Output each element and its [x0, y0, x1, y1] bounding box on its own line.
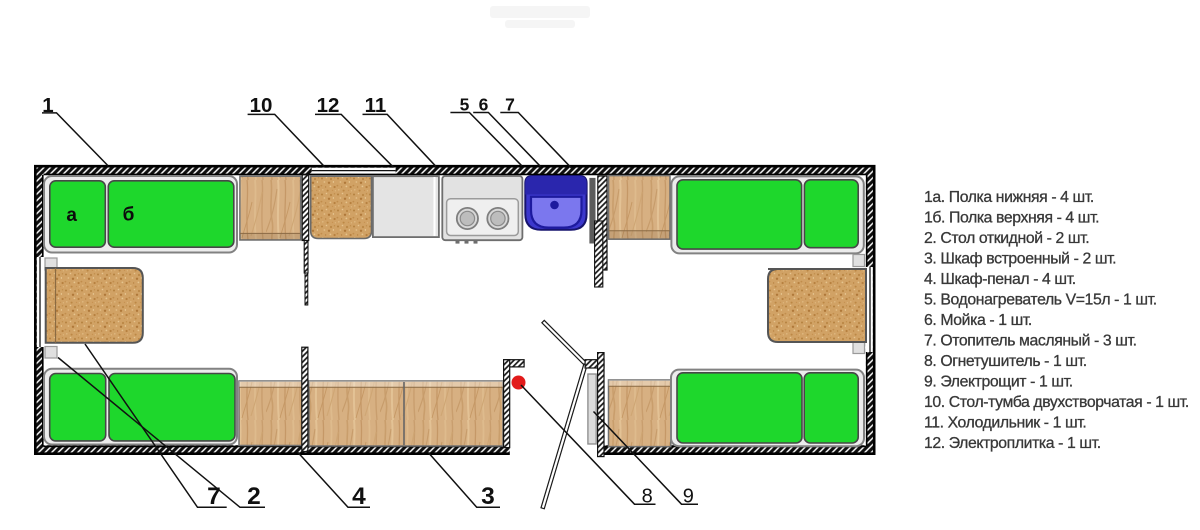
svg-text:4: 4 — [352, 483, 366, 510]
svg-text:1а. Полка нижняя - 4 шт.: 1а. Полка нижняя - 4 шт. — [924, 189, 1094, 206]
svg-text:6: 6 — [479, 95, 489, 115]
svg-text:8: 8 — [642, 486, 653, 508]
svg-text:9. Электрощит - 1 шт.: 9. Электрощит - 1 шт. — [924, 374, 1073, 391]
svg-text:5. Водонагреватель V=15л - 1 ш: 5. Водонагреватель V=15л - 1 шт. — [924, 292, 1157, 309]
svg-text:11. Холодильник - 1 шт.: 11. Холодильник - 1 шт. — [924, 415, 1086, 432]
svg-text:9: 9 — [683, 486, 694, 508]
svg-text:3. Шкаф встроенный - 2 шт.: 3. Шкаф встроенный - 2 шт. — [924, 251, 1116, 268]
svg-text:а: а — [66, 205, 77, 226]
svg-text:3: 3 — [481, 483, 495, 510]
svg-text:12. Электроплитка - 1 шт.: 12. Электроплитка - 1 шт. — [924, 435, 1101, 452]
svg-text:8. Огнетушитель - 1 шт.: 8. Огнетушитель - 1 шт. — [924, 353, 1087, 370]
svg-text:2. Стол откидной - 2 шт.: 2. Стол откидной - 2 шт. — [924, 230, 1089, 247]
svg-text:10. Стол-тумба двухстворчатая: 10. Стол-тумба двухстворчатая - 1 шт. — [924, 394, 1189, 411]
svg-text:б: б — [123, 205, 135, 226]
svg-text:5: 5 — [460, 95, 470, 115]
svg-text:7: 7 — [207, 483, 221, 510]
svg-text:10: 10 — [250, 94, 273, 117]
svg-text:4. Шкаф-пенал - 4 шт.: 4. Шкаф-пенал - 4 шт. — [924, 271, 1076, 288]
svg-text:7. Отопитель масляный - 3 шт.: 7. Отопитель масляный - 3 шт. — [924, 333, 1137, 350]
svg-text:1: 1 — [42, 94, 53, 117]
svg-text:11: 11 — [365, 94, 387, 117]
svg-text:12: 12 — [317, 94, 340, 117]
svg-text:7: 7 — [505, 95, 515, 115]
svg-text:6. Мойка - 1 шт.: 6. Мойка - 1 шт. — [924, 312, 1032, 329]
svg-text:2: 2 — [247, 483, 261, 510]
svg-text:1б. Полка верхняя - 4 шт.: 1б. Полка верхняя - 4 шт. — [924, 210, 1099, 227]
